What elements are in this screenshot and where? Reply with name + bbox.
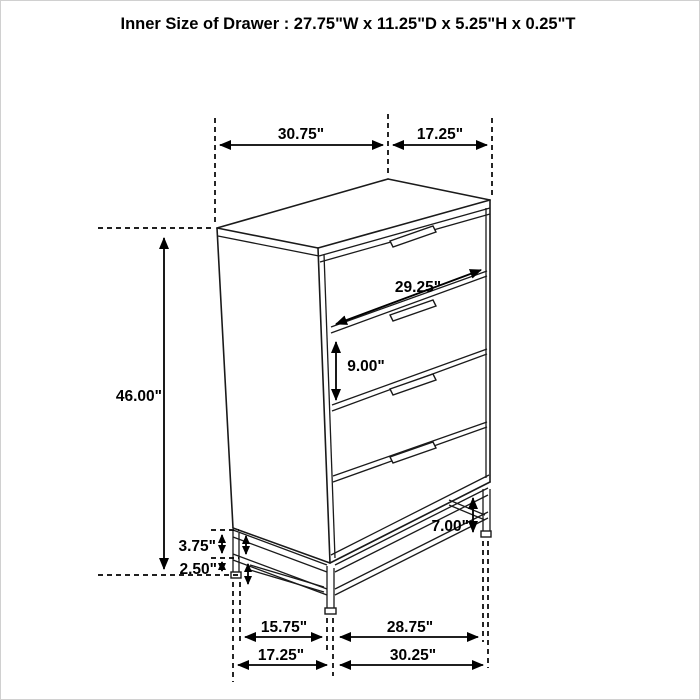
base-inner-depth-label: 15.75" xyxy=(261,619,307,636)
drawer-height-label: 9.00" xyxy=(347,358,385,375)
image-border xyxy=(1,1,700,700)
top-width-label: 30.75" xyxy=(278,126,324,143)
overall-height-label: 46.00" xyxy=(116,388,162,405)
top-depth-label: 17.25" xyxy=(417,126,463,143)
base-upper-gap-label: 3.75" xyxy=(178,538,216,555)
floor-width-label: 30.25" xyxy=(390,647,436,664)
chest-dimension-diagram: Inner Size of Drawer : 27.75"W x 11.25"D… xyxy=(0,0,700,700)
base-lower-gap-label: 2.50" xyxy=(179,561,217,578)
dimension-diagram-page: Inner Size of Drawer : 27.75"W x 11.25"D… xyxy=(0,0,700,700)
drawer-width-label: 29.25" xyxy=(395,279,441,296)
page-title: Inner Size of Drawer : 27.75"W x 11.25"D… xyxy=(121,15,576,33)
base-inner-width-label: 28.75" xyxy=(387,619,433,636)
leg-height-label: 7.00" xyxy=(431,518,469,535)
floor-depth-label: 17.25" xyxy=(258,647,304,664)
